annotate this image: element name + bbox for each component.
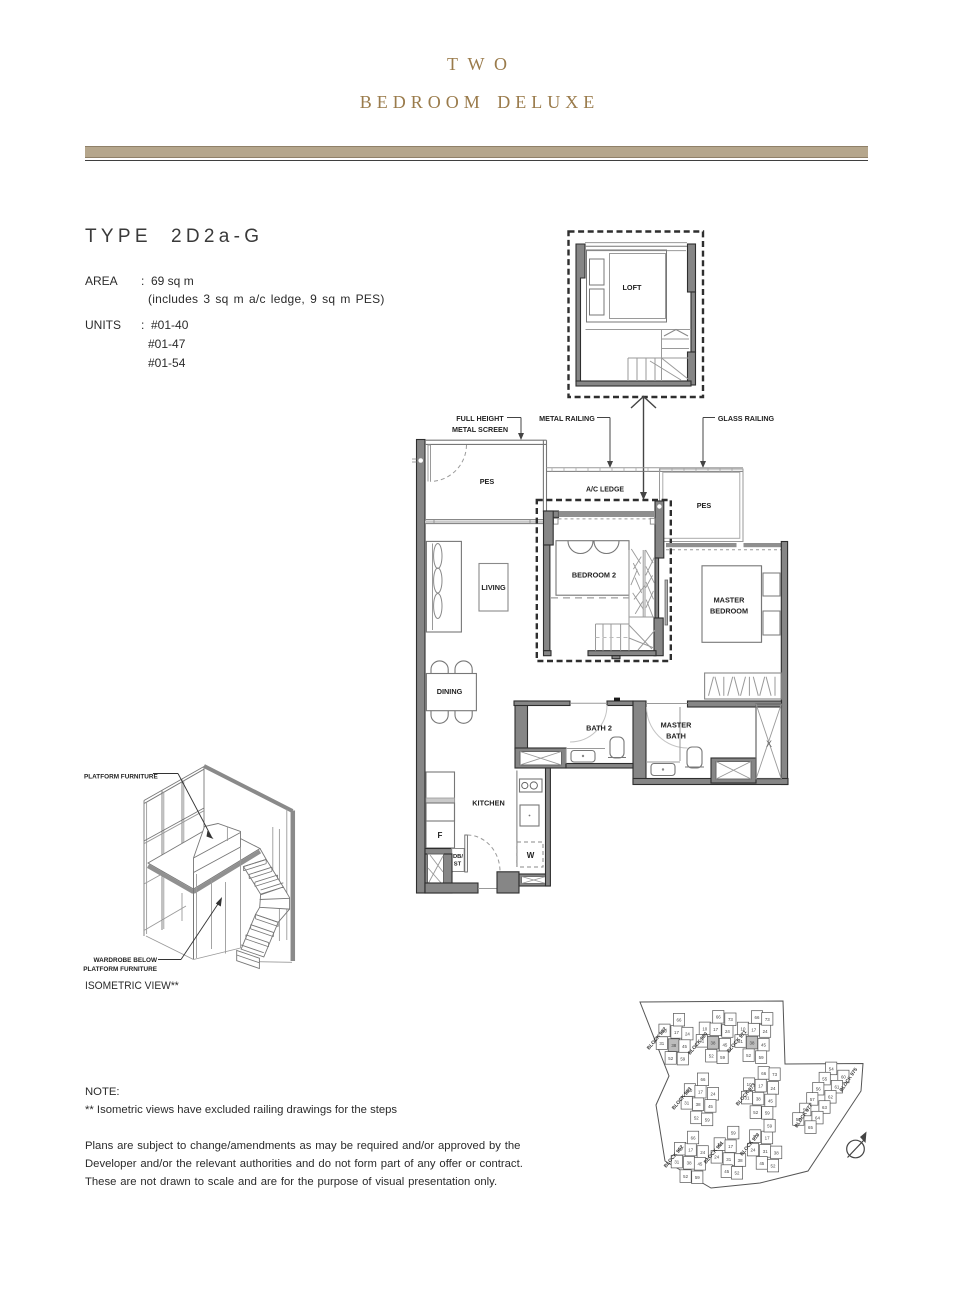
svg-text:GLASS RAILING: GLASS RAILING	[718, 414, 775, 423]
svg-text:17: 17	[728, 1144, 733, 1149]
svg-text:F: F	[438, 831, 443, 840]
svg-text:52: 52	[709, 1054, 714, 1059]
svg-text:METAL RAILING: METAL RAILING	[539, 414, 595, 423]
svg-text:45: 45	[682, 1044, 687, 1049]
svg-text:KITCHEN: KITCHEN	[472, 799, 504, 808]
svg-text:45: 45	[697, 1162, 702, 1167]
svg-text:17: 17	[674, 1030, 679, 1035]
svg-text:66: 66	[691, 1135, 696, 1140]
svg-text:63: 63	[822, 1105, 827, 1110]
svg-text:17: 17	[765, 1135, 770, 1140]
svg-text:38: 38	[711, 1041, 716, 1046]
svg-text:45: 45	[761, 1043, 766, 1048]
svg-text:66: 66	[716, 1015, 721, 1020]
svg-text:ST: ST	[454, 862, 462, 868]
svg-text:BATH: BATH	[666, 732, 686, 741]
svg-text:PLATFORM FURNITURE: PLATFORM FURNITURE	[84, 774, 158, 781]
svg-text:LIVING: LIVING	[481, 583, 506, 592]
svg-text:56: 56	[816, 1087, 821, 1092]
svg-text:45: 45	[759, 1161, 764, 1166]
svg-text:MASTER: MASTER	[661, 721, 693, 730]
svg-text:FULL HEIGHT: FULL HEIGHT	[456, 414, 504, 423]
svg-text:59: 59	[720, 1055, 725, 1060]
svg-text:PLATFORM FURNITURE: PLATFORM FURNITURE	[83, 966, 157, 973]
svg-text:PES: PES	[480, 477, 495, 486]
svg-text:54: 54	[829, 1066, 834, 1071]
svg-text:59: 59	[705, 1117, 710, 1122]
svg-text:52: 52	[668, 1056, 673, 1061]
svg-text:52: 52	[683, 1174, 688, 1179]
svg-text:24: 24	[751, 1148, 756, 1153]
svg-text:59: 59	[680, 1057, 685, 1062]
svg-text:17: 17	[713, 1027, 718, 1032]
svg-text:24: 24	[763, 1029, 768, 1034]
svg-text:57: 57	[810, 1097, 815, 1102]
svg-text:31: 31	[726, 1157, 731, 1162]
svg-text:17: 17	[751, 1028, 756, 1033]
svg-text:66: 66	[755, 1015, 760, 1020]
svg-text:BEDROOM: BEDROOM	[710, 607, 748, 616]
svg-text:62: 62	[828, 1095, 833, 1100]
svg-text:59: 59	[765, 1111, 770, 1116]
svg-text:45: 45	[708, 1104, 713, 1109]
svg-text:BATH 2: BATH 2	[586, 724, 612, 733]
svg-text:24: 24	[725, 1029, 730, 1034]
svg-text:59: 59	[767, 1124, 772, 1129]
svg-text:66: 66	[677, 1018, 682, 1023]
svg-text:52: 52	[753, 1110, 758, 1115]
svg-text:52: 52	[735, 1171, 740, 1176]
svg-text:17: 17	[758, 1084, 763, 1089]
svg-text:BEDROOM 2: BEDROOM 2	[572, 571, 616, 580]
svg-text:65: 65	[808, 1125, 813, 1130]
svg-text:24: 24	[685, 1032, 690, 1037]
svg-text:38: 38	[687, 1161, 692, 1166]
svg-text:DB/: DB/	[453, 854, 463, 860]
svg-text:38: 38	[774, 1150, 779, 1155]
svg-text:52: 52	[746, 1053, 751, 1058]
svg-text:73: 73	[772, 1072, 777, 1077]
svg-text:WARDROBE BELOW: WARDROBE BELOW	[93, 957, 158, 964]
svg-text:PES: PES	[697, 501, 712, 510]
svg-text:24: 24	[771, 1086, 776, 1091]
svg-text:45: 45	[724, 1169, 729, 1174]
svg-text:64: 64	[815, 1116, 820, 1121]
svg-text:52: 52	[694, 1115, 699, 1120]
svg-text:31: 31	[674, 1160, 679, 1165]
svg-text:METAL SCREEN: METAL SCREEN	[452, 425, 508, 434]
svg-text:38: 38	[738, 1158, 743, 1163]
svg-text:38: 38	[671, 1043, 676, 1048]
svg-text:17: 17	[698, 1090, 703, 1095]
svg-text:24: 24	[700, 1150, 705, 1155]
svg-text:31: 31	[763, 1149, 768, 1154]
svg-text:A/C LEDGE: A/C LEDGE	[586, 487, 624, 494]
svg-text:55: 55	[822, 1077, 827, 1082]
svg-text:45: 45	[722, 1043, 727, 1048]
svg-text:59: 59	[759, 1055, 764, 1060]
svg-text:W: W	[527, 851, 535, 860]
svg-text:10: 10	[702, 1026, 707, 1031]
svg-text:59: 59	[695, 1175, 700, 1180]
svg-text:MASTER: MASTER	[714, 596, 746, 605]
svg-text:59: 59	[731, 1131, 736, 1136]
svg-text:LOFT: LOFT	[622, 283, 642, 292]
svg-text:45: 45	[768, 1098, 773, 1103]
svg-text:31: 31	[659, 1041, 664, 1046]
svg-text:38: 38	[696, 1102, 701, 1107]
svg-text:X: X	[766, 739, 772, 749]
svg-text:73: 73	[765, 1017, 770, 1022]
svg-text:66: 66	[701, 1077, 706, 1082]
svg-text:66: 66	[761, 1071, 766, 1076]
svg-text:DINING: DINING	[437, 687, 463, 696]
svg-text:38: 38	[750, 1041, 755, 1046]
svg-text:31: 31	[684, 1101, 689, 1106]
svg-text:24: 24	[711, 1092, 716, 1097]
svg-text:38: 38	[756, 1097, 761, 1102]
svg-text:52: 52	[771, 1164, 776, 1169]
svg-text:17: 17	[688, 1147, 693, 1152]
svg-text:73: 73	[728, 1017, 733, 1022]
